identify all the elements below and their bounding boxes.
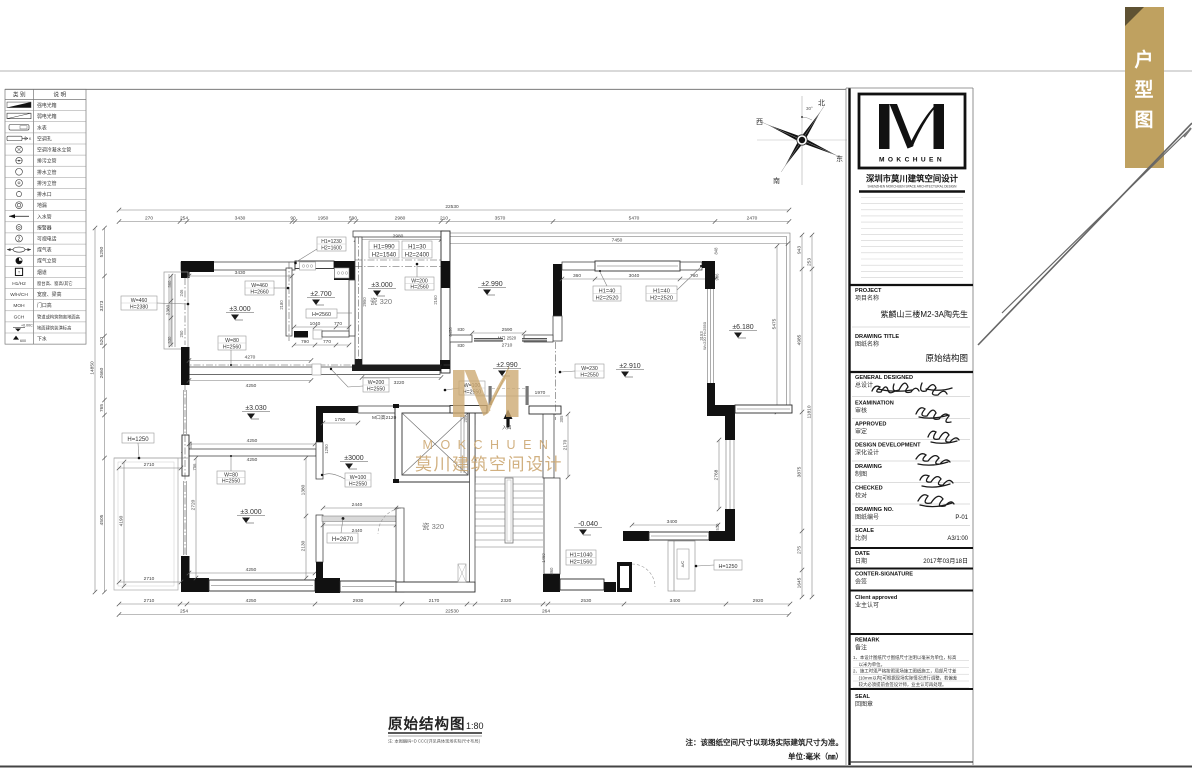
svg-text:254: 254 <box>180 216 188 222</box>
svg-text:H=2550: H=2550 <box>222 479 240 485</box>
svg-text:3373: 3373 <box>99 300 105 311</box>
svg-text:2530: 2530 <box>581 598 592 604</box>
svg-text:地漏: 地漏 <box>37 202 47 209</box>
svg-text:H=1250: H=1250 <box>718 564 737 570</box>
svg-text:2710: 2710 <box>144 462 155 468</box>
svg-text:入口: 入口 <box>502 425 512 431</box>
svg-text:GCH: GCH <box>14 314 25 320</box>
svg-text:1460: 1460 <box>541 553 546 563</box>
svg-text:原始结构图: 原始结构图 <box>388 715 466 733</box>
svg-text:600: 600 <box>20 339 26 343</box>
svg-text:590: 590 <box>349 216 357 222</box>
svg-text:W=80: W=80 <box>225 338 239 344</box>
svg-text:2380: 2380 <box>166 304 172 315</box>
svg-text:比例: 比例 <box>855 534 867 542</box>
svg-text:2017年03月18日: 2017年03月18日 <box>923 557 968 565</box>
svg-text:备注: 备注 <box>855 644 867 652</box>
svg-text:±2.990: ±2.990 <box>481 281 502 288</box>
svg-text:830: 830 <box>458 327 466 332</box>
svg-text:下水: 下水 <box>37 336 47 343</box>
svg-text:PROJECT: PROJECT <box>855 288 882 294</box>
svg-text:11810: 11810 <box>807 405 813 418</box>
svg-text:以米为单位。: 以米为单位。 <box>853 661 885 668</box>
svg-text:原始结构图: 原始结构图 <box>925 353 968 363</box>
svg-text:制图: 制图 <box>855 470 867 478</box>
svg-text:2130: 2130 <box>301 540 307 551</box>
svg-text:2710: 2710 <box>144 576 155 582</box>
svg-text:H1=990: H1=990 <box>373 244 395 250</box>
svg-text:943: 943 <box>797 246 803 254</box>
svg-text:EXAMINATION: EXAMINATION <box>855 401 894 407</box>
svg-text:1:80: 1:80 <box>466 721 484 731</box>
svg-text:CHECKED: CHECKED <box>855 486 883 492</box>
svg-text:日期: 日期 <box>855 557 867 565</box>
svg-text:22530: 22530 <box>445 204 459 210</box>
svg-text:2950: 2950 <box>362 297 367 307</box>
svg-text:空调孔: 空调孔 <box>37 135 52 142</box>
svg-text:-0.040: -0.040 <box>578 521 598 528</box>
svg-text:H=2560: H=2560 <box>410 285 428 291</box>
svg-text:说 明: 说 明 <box>53 91 66 99</box>
svg-text:W/H/CH: W/H/CH <box>10 292 28 298</box>
svg-text:2660: 2660 <box>99 367 105 378</box>
svg-text:W=200: W=200 <box>411 278 428 284</box>
svg-text:较大必须提前会签设计师，业主认可再处理。: 较大必须提前会签设计师，业主认可再处理。 <box>853 681 946 688</box>
svg-text:排污立管: 排污立管 <box>37 158 57 165</box>
svg-text:MOKCHUEN: MOKCHUEN <box>879 157 945 164</box>
svg-text:7450: 7450 <box>612 238 623 244</box>
svg-text:2590: 2590 <box>502 327 513 333</box>
svg-text:2170: 2170 <box>563 439 569 450</box>
svg-text:210: 210 <box>440 216 448 222</box>
svg-text:3220: 3220 <box>394 380 405 386</box>
svg-text:±3.030: ±3.030 <box>245 405 266 412</box>
svg-text:360: 360 <box>573 273 581 279</box>
svg-text:4505: 4505 <box>99 514 105 525</box>
svg-text:DATE: DATE <box>855 551 870 557</box>
svg-text:排水立管: 排水立管 <box>37 169 57 176</box>
svg-text:DESIGN DEVELOPMENT: DESIGN DEVELOPMENT <box>855 443 921 449</box>
svg-text:W=200: W=200 <box>368 380 385 386</box>
svg-text:2980: 2980 <box>393 234 404 240</box>
svg-text:入水管: 入水管 <box>37 213 52 220</box>
svg-text:765: 765 <box>99 404 105 412</box>
svg-text:860: 860 <box>549 567 554 575</box>
svg-text:4985: 4985 <box>797 334 803 345</box>
svg-text:250: 250 <box>179 330 184 338</box>
svg-text:2180: 2180 <box>279 300 284 310</box>
svg-text:3570: 3570 <box>495 216 506 222</box>
svg-text:1040: 1040 <box>310 321 321 327</box>
svg-text:莫川建筑空间设计: 莫川建筑空间设计 <box>415 455 563 474</box>
svg-text:SCALE: SCALE <box>855 528 874 534</box>
svg-text:DRAWING NO.: DRAWING NO. <box>855 507 894 513</box>
svg-text:3430: 3430 <box>235 270 246 276</box>
svg-text:305: 305 <box>559 415 564 423</box>
svg-text:2、施工时须严格按照现场施工图纸施工，局部尺寸差: 2、施工时须严格按照现场施工图纸施工，局部尺寸差 <box>853 668 957 675</box>
svg-text:2930: 2930 <box>353 598 364 604</box>
svg-text:770: 770 <box>323 339 331 345</box>
svg-text:回图章: 回图章 <box>855 700 873 708</box>
svg-text:1290: 1290 <box>324 444 329 454</box>
svg-text:烟道: 烟道 <box>37 269 47 276</box>
svg-text:3400: 3400 <box>667 519 678 525</box>
svg-text:90: 90 <box>290 216 296 222</box>
svg-text:CONTER-SIGNATURE: CONTER-SIGNATURE <box>855 572 913 578</box>
svg-text:4190: 4190 <box>119 515 125 526</box>
svg-text:窗台高、窗高/其它: 窗台高、窗高/其它 <box>37 280 73 287</box>
svg-text:H=1250: H=1250 <box>127 437 149 443</box>
svg-text:254: 254 <box>180 609 188 615</box>
svg-text:H1=40: H1=40 <box>599 288 616 294</box>
svg-text:2980: 2980 <box>395 216 406 222</box>
svg-text:MOKCHUEN: MOKCHUEN <box>423 438 556 452</box>
svg-text:GENERAL DESIGNED: GENERAL DESIGNED <box>855 375 913 381</box>
svg-text:注: 本图编码=D CCC(详见具体现场实际尺寸布局): 注: 本图编码=D CCC(详见具体现场实际尺寸布局) <box>388 738 481 745</box>
svg-text:±3000: ±3000 <box>344 455 364 462</box>
svg-text:±3.000: ±3.000 <box>371 282 392 289</box>
svg-text:审定: 审定 <box>855 428 867 436</box>
svg-text:(10mm以内)可根据现场实际情况进行调整，若偏差: (10mm以内)可根据现场实际情况进行调整，若偏差 <box>853 674 958 681</box>
svg-text:东: 东 <box>836 154 843 163</box>
svg-text:紫麟山三楼M2-3A陶先生: 紫麟山三楼M2-3A陶先生 <box>880 309 968 319</box>
svg-text:H=2550: H=2550 <box>367 387 385 393</box>
svg-text:253: 253 <box>807 258 813 266</box>
svg-text:W=460: W=460 <box>131 298 148 304</box>
svg-text:1380: 1380 <box>301 484 307 495</box>
svg-text:SEAL: SEAL <box>855 694 871 700</box>
svg-text:545: 545 <box>188 441 193 449</box>
svg-text:H=2550: H=2550 <box>580 373 598 379</box>
svg-text:14850: 14850 <box>90 361 96 375</box>
svg-text:H1=1040: H1=1040 <box>570 552 593 558</box>
svg-text:4250: 4250 <box>247 457 258 463</box>
svg-text:会签: 会签 <box>855 578 867 586</box>
svg-text:2920: 2920 <box>753 598 764 604</box>
svg-text:H2=2520: H2=2520 <box>650 296 673 302</box>
svg-text:1790: 1790 <box>335 417 346 423</box>
svg-text:H1/H2: H1/H2 <box>12 281 26 287</box>
svg-text:3400: 3400 <box>670 598 681 604</box>
svg-text:4250: 4250 <box>246 567 257 573</box>
svg-text:H2=1600: H2=1600 <box>321 246 342 252</box>
svg-text:±6.180: ±6.180 <box>732 324 753 331</box>
svg-text:排污立管: 排污立管 <box>37 180 57 187</box>
svg-text:5290: 5290 <box>99 246 105 257</box>
svg-text:深化设计: 深化设计 <box>855 449 879 457</box>
svg-text:总设计: 总设计 <box>855 381 873 389</box>
svg-text:煤气表: 煤气表 <box>37 247 52 254</box>
svg-text:770: 770 <box>334 321 342 327</box>
svg-text:APPROVED: APPROVED <box>855 422 886 428</box>
svg-text:2720: 2720 <box>191 499 197 510</box>
svg-text:4250: 4250 <box>246 598 257 604</box>
svg-text:M口高2120: M口高2120 <box>372 414 397 421</box>
svg-text:类 别: 类 别 <box>13 91 26 99</box>
svg-text:1950: 1950 <box>318 216 329 222</box>
svg-text:REMARK: REMARK <box>855 638 880 644</box>
svg-text:2710: 2710 <box>502 343 513 349</box>
svg-text:单位:毫米（㎜）: 单位:毫米（㎜） <box>788 751 843 761</box>
svg-text:宽度、梁高: 宽度、梁高 <box>37 291 62 298</box>
svg-text:±2.990: ±2.990 <box>496 362 517 369</box>
svg-text:2320: 2320 <box>501 598 512 604</box>
svg-text:520: 520 <box>99 337 105 345</box>
svg-text:2710: 2710 <box>144 598 155 604</box>
svg-text:H=2560: H=2560 <box>223 345 241 351</box>
svg-text:煤气立管: 煤气立管 <box>37 258 57 265</box>
svg-text:830: 830 <box>458 343 466 348</box>
svg-text:空调冷凝水立管: 空调冷凝水立管 <box>37 147 71 154</box>
svg-text:2160: 2160 <box>433 295 438 305</box>
svg-text:瓷 320: 瓷 320 <box>422 521 444 531</box>
svg-text:275: 275 <box>797 546 803 554</box>
svg-text:Client approved: Client approved <box>855 595 898 601</box>
svg-text:2440: 2440 <box>352 502 363 508</box>
svg-text:5470: 5470 <box>629 216 640 222</box>
svg-text:790: 790 <box>301 339 309 345</box>
svg-text:DRAWING: DRAWING <box>855 464 882 470</box>
svg-text:4270: 4270 <box>245 355 256 361</box>
svg-text:西: 西 <box>756 118 763 126</box>
svg-text:型: 型 <box>1134 78 1153 101</box>
svg-text:H=2660: H=2660 <box>250 290 268 296</box>
svg-text:22530: 22530 <box>445 609 459 615</box>
svg-text:270: 270 <box>145 216 153 222</box>
svg-text:地面建筑装潢标高: 地面建筑装潢标高 <box>37 324 72 331</box>
svg-text:管道或构筑物离地面高: 管道或构筑物离地面高 <box>37 313 81 320</box>
svg-text:图纸编号: 图纸编号 <box>855 513 879 521</box>
svg-text:瓷 320: 瓷 320 <box>370 296 392 306</box>
svg-text:W=100: W=100 <box>350 475 367 481</box>
svg-text:MOH: MOH <box>13 303 25 309</box>
svg-text:2470: 2470 <box>747 216 758 222</box>
svg-text:3040: 3040 <box>629 273 640 279</box>
svg-text:水表: 水表 <box>37 124 47 131</box>
svg-text:±3.000: ±3.000 <box>240 509 261 516</box>
svg-text:户: 户 <box>1134 48 1153 71</box>
svg-text:6450: 6450 <box>448 327 453 337</box>
svg-text:SHENZHEN MOKCHUEN SPACE ARCHIT: SHENZHEN MOKCHUEN SPACE ARCHITECTURAL DE… <box>868 185 958 189</box>
svg-text:756: 756 <box>192 463 197 471</box>
svg-text:±2.910: ±2.910 <box>619 363 640 370</box>
svg-text:图纸名称: 图纸名称 <box>855 340 879 348</box>
svg-text:246: 246 <box>179 289 184 297</box>
svg-text:30°: 30° <box>806 106 813 111</box>
svg-text:530: 530 <box>167 336 172 344</box>
svg-text:1645: 1645 <box>797 577 803 588</box>
svg-text:H1=30: H1=30 <box>408 244 427 250</box>
svg-text:3430: 3430 <box>235 216 246 222</box>
svg-text:1、本设计图纸尺寸图纸尺寸注明以毫米为单位，标高: 1、本设计图纸尺寸图纸尺寸注明以毫米为单位，标高 <box>853 654 957 661</box>
svg-text:±3.000: ±3.000 <box>229 306 250 313</box>
svg-text:5475: 5475 <box>772 318 778 329</box>
svg-text:H=2670: H=2670 <box>332 537 354 543</box>
svg-text:弱电光箱: 弱电光箱 <box>37 113 57 120</box>
svg-text:审核: 审核 <box>855 407 867 415</box>
svg-text:K: K <box>29 137 32 141</box>
svg-text:W=80: W=80 <box>224 472 238 478</box>
svg-text:510: 510 <box>715 523 720 531</box>
svg-text:+0.00C: +0.00C <box>21 323 33 327</box>
svg-text:DRAWING TITLE: DRAWING TITLE <box>855 334 899 340</box>
svg-text:W=460: W=460 <box>251 283 268 289</box>
svg-text:2: 2 <box>18 237 21 243</box>
svg-text:W=230: W=230 <box>581 366 598 372</box>
svg-text:南: 南 <box>773 176 780 185</box>
svg-text:H=2550: H=2550 <box>349 482 367 488</box>
svg-text:T: T <box>18 270 20 274</box>
svg-text:注：该图纸空间尺寸以现场实际建筑尺寸为准。: 注：该图纸空间尺寸以现场实际建筑尺寸为准。 <box>686 737 844 747</box>
svg-text:4250: 4250 <box>246 383 257 389</box>
svg-text:校对: 校对 <box>855 492 867 500</box>
svg-text:H2=1540: H2=1540 <box>372 253 397 259</box>
svg-text:H=2560: H=2560 <box>312 312 331 318</box>
svg-text:强电光箱: 强电光箱 <box>37 102 57 109</box>
svg-text:业主认可: 业主认可 <box>855 601 879 609</box>
svg-text:排水口: 排水口 <box>37 191 52 198</box>
svg-text:264: 264 <box>542 609 550 615</box>
svg-text:H=2380: H=2380 <box>130 305 148 311</box>
svg-text:A3/1:00: A3/1:00 <box>947 536 968 542</box>
svg-text:560: 560 <box>167 280 172 288</box>
svg-text:4250: 4250 <box>247 438 258 444</box>
svg-text:项目名称: 项目名称 <box>855 294 879 302</box>
svg-text:3875: 3875 <box>797 466 803 477</box>
svg-text:2170: 2170 <box>429 598 440 604</box>
svg-text:H1=40: H1=40 <box>653 288 670 294</box>
svg-text:H2=2520: H2=2520 <box>596 296 619 302</box>
svg-text:门口高: 门口高 <box>37 302 52 309</box>
svg-text:H2=1560: H2=1560 <box>570 560 593 566</box>
svg-text:906: 906 <box>715 273 720 281</box>
svg-text:848: 848 <box>714 247 719 255</box>
svg-text:H1=1230: H1=1230 <box>321 239 342 245</box>
svg-text:北: 北 <box>818 99 825 107</box>
svg-text:1970: 1970 <box>535 390 546 396</box>
svg-text:可视电话: 可视电话 <box>37 236 57 243</box>
svg-text:3153: 3153 <box>699 331 704 341</box>
svg-text:报警器: 报警器 <box>37 224 52 231</box>
svg-text:P-01: P-01 <box>955 515 968 521</box>
svg-text:深圳市莫川建筑空间设计: 深圳市莫川建筑空间设计 <box>866 174 959 184</box>
svg-text:±2.700: ±2.700 <box>310 291 331 298</box>
svg-text:2768: 2768 <box>714 469 720 480</box>
svg-text:A/C: A/C <box>680 561 685 568</box>
svg-text:H2=2400: H2=2400 <box>405 253 430 259</box>
svg-text:图: 图 <box>1134 109 1153 131</box>
